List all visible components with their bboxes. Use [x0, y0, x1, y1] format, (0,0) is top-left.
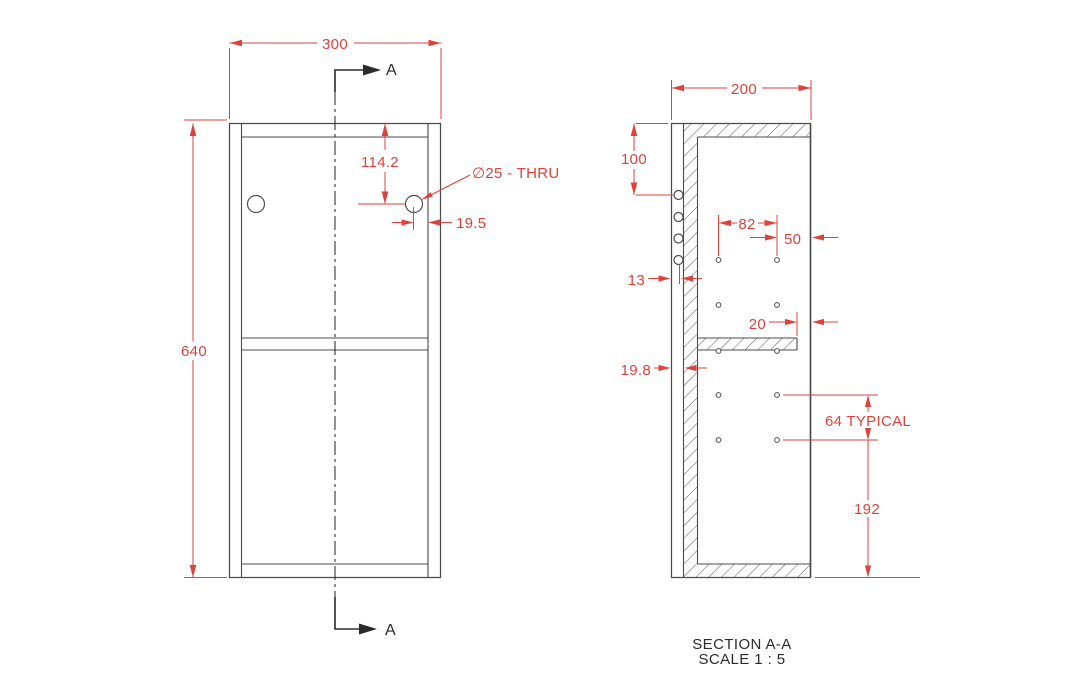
dim-bottom-span-192: 192: [815, 440, 920, 578]
dim-hole-columns-label: 82: [738, 216, 755, 233]
dim-hole-edge-19-5: 19.5: [392, 207, 486, 232]
section-title-block: SECTION A-A SCALE 1 : 5: [692, 636, 791, 668]
hole-callout-label: ∅25 - THRU: [472, 165, 559, 182]
dim-front-column-label: 50: [784, 231, 801, 248]
hole-callout: ∅25 - THRU: [421, 165, 559, 200]
dim-back-panel-thickness-label: 19.8: [621, 362, 651, 379]
dim-hole-vertical-114: 114.2: [358, 124, 405, 205]
dim-height-640: 640: [181, 120, 227, 578]
section-view: 200 100 13 19.8: [621, 80, 920, 668]
section-cut-arrow-bottom: A: [335, 597, 396, 639]
dim-depth-label: 200: [731, 81, 757, 98]
dim-top-hole-100: 100: [621, 124, 673, 196]
front-view: A A 300 640: [181, 36, 559, 639]
dim-width-label: 300: [322, 36, 348, 53]
dim-hole-pitch-64: 64 TYPICAL: [783, 395, 911, 440]
dim-depth-200: 200: [672, 80, 812, 120]
dim-bottom-span-label: 192: [854, 501, 880, 518]
section-scale: SCALE 1 : 5: [699, 651, 786, 668]
section-cut-arrow-top: A: [335, 62, 397, 92]
dim-shelf-setback-20: 20: [749, 312, 838, 336]
cad-drawing: A A 300 640: [0, 0, 1091, 700]
dim-back-hole-inset-label: 13: [628, 272, 645, 289]
dim-height-label: 640: [181, 343, 207, 360]
dim-shelf-setback-label: 20: [749, 316, 766, 333]
dim-hole-edge-label: 19.5: [456, 215, 486, 232]
dim-hole-pitch-label: 64 TYPICAL: [825, 413, 911, 430]
left-hole: [248, 196, 265, 213]
back-panel-pilot-holes: [674, 191, 683, 265]
section-label-top: A: [386, 62, 397, 79]
section-label-bottom: A: [385, 622, 396, 639]
dim-hole-vertical-label: 114.2: [361, 154, 399, 171]
drawing-sheet: A A 300 640: [0, 0, 1091, 700]
dim-top-hole-label: 100: [621, 151, 647, 168]
dim-front-column-50: 50: [750, 231, 838, 248]
